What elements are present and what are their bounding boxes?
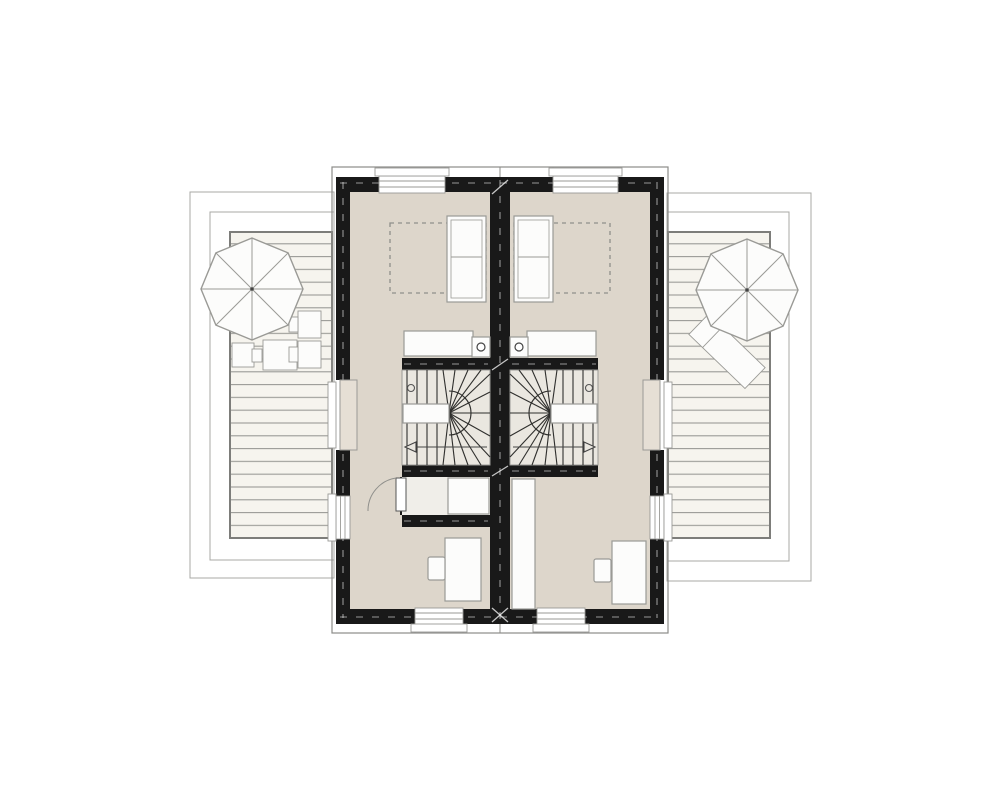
deck-chair-backrest — [252, 349, 262, 362]
stair-wall-top-right — [510, 358, 598, 370]
floor-plan-canvas — [0, 0, 1000, 800]
sideboard — [404, 331, 473, 356]
stair-handrail-island — [403, 404, 449, 423]
west-window — [336, 496, 350, 539]
pedestal-with-lamp — [472, 337, 490, 357]
right-terrace — [667, 193, 811, 581]
desk-chair — [428, 557, 445, 580]
east-window — [650, 496, 664, 539]
desk — [445, 538, 481, 601]
parasol-pole — [745, 288, 749, 292]
north-window-sill-right — [549, 168, 622, 176]
double-bed — [514, 216, 553, 302]
deck-chair — [298, 311, 321, 338]
stair-handrail-island — [551, 404, 597, 423]
sideboard — [527, 331, 596, 356]
closet — [448, 478, 489, 514]
parasol-left — [201, 238, 303, 340]
south-window-left-unit — [415, 608, 463, 625]
floor-plan-page — [0, 0, 1000, 800]
east-terrace-door-reveal — [643, 380, 660, 450]
winder-staircase-right — [510, 370, 598, 465]
desk-chair — [594, 559, 611, 582]
north-window-left-unit — [379, 176, 445, 193]
deck-chair — [298, 341, 321, 368]
double-bed — [447, 216, 486, 302]
winder-staircase-left — [402, 370, 490, 465]
tall-wardrobe — [512, 479, 535, 609]
left-terrace — [190, 192, 334, 578]
parasol-right — [696, 239, 798, 341]
west-window-sill — [328, 494, 336, 541]
deck-chair — [232, 343, 254, 367]
parasol-pole — [250, 287, 254, 291]
east-window-sill — [664, 494, 672, 541]
stair-wall-top-left — [402, 358, 490, 370]
stair-wall-bottom-right — [510, 465, 598, 477]
stair-wall-bottom-left — [402, 465, 490, 477]
east-terrace-door-sill — [664, 382, 672, 448]
north-window-sill-left — [375, 168, 449, 176]
north-window-right-unit — [553, 176, 618, 193]
west-terrace-door-reveal — [340, 380, 357, 450]
south-window-sill-right — [533, 624, 589, 632]
south-window-sill-left — [411, 624, 467, 632]
closet-wall-left-unit — [402, 515, 490, 527]
pedestal-with-lamp — [510, 337, 528, 357]
deck-chair-backrest — [289, 347, 298, 362]
south-window-right-unit — [537, 608, 585, 625]
west-terrace-door-sill — [328, 382, 336, 448]
desk — [612, 541, 646, 604]
